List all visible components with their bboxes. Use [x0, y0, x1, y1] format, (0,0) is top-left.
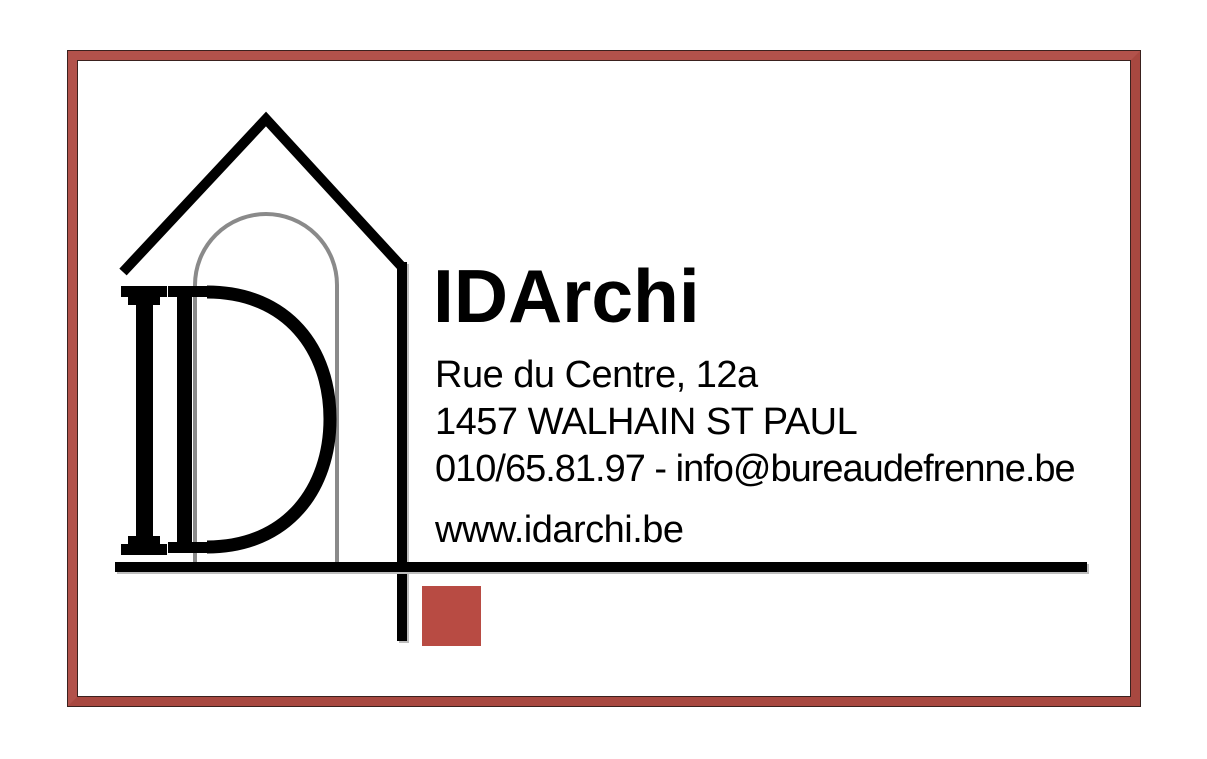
- website-url: www.idarchi.be: [435, 511, 684, 549]
- business-card: IDArchi Rue du Centre, 12a 1457 WALHAIN …: [0, 0, 1207, 759]
- address-line-1: Rue du Centre, 12a: [435, 356, 758, 394]
- address-line-2: 1457 WALHAIN ST PAUL: [435, 403, 857, 441]
- company-name: IDArchi: [433, 259, 700, 334]
- phone-email-line: 010/65.81.97 - info@bureaudefrenne.be: [435, 450, 1075, 488]
